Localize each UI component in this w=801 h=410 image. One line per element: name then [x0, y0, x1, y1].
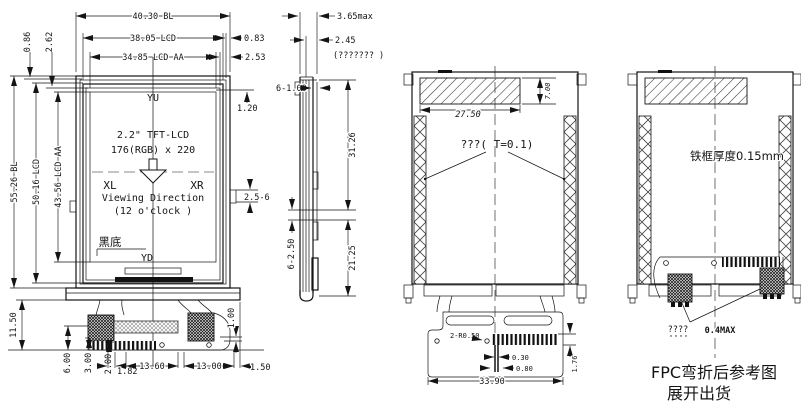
fpc-stiffener-left	[88, 315, 114, 341]
contact-comb	[722, 257, 780, 267]
dim-pin-width: 0.30	[512, 354, 529, 362]
frame-tick	[438, 70, 452, 73]
dim-fpc-1150: 11.50	[9, 312, 19, 338]
side-tape-left	[414, 116, 426, 284]
side-tape-right	[779, 116, 791, 284]
back-view-folded: 铁框厚度0.15mm ???? 0.4MAX FPC弯折后参考图 展开出货	[628, 66, 801, 403]
dim-thickness-max: 3.65max	[337, 12, 373, 22]
dim-inset-120: 1.20	[237, 104, 257, 114]
viewing-direction-arrow	[140, 159, 166, 183]
fpc-hole	[664, 261, 669, 266]
dim-fpc-150: 1.50	[250, 363, 270, 373]
dim-height-aa: 43.56 LCD AA	[54, 146, 64, 207]
side-tape-left	[639, 116, 651, 284]
lcd-outline-drawing: 40.30 BL 38.05 LCD 34.85 LCD AA 0.83 2.5…	[0, 0, 801, 410]
dim-pin-pitch: 0.80	[516, 365, 533, 373]
dim-tape-height: 7.00	[544, 83, 552, 100]
corner-xl: XL	[103, 179, 117, 192]
fpc-stiffener-right	[188, 313, 214, 341]
dim-fpc-200: 2.00	[104, 354, 114, 374]
adhesive-tape	[645, 78, 747, 104]
dim-edge-253: 2.53	[245, 53, 265, 63]
corner-xr: XR	[190, 179, 204, 192]
dim-pin-range: 2.5-6	[244, 193, 270, 203]
dim-fold-max: 0.4MAX	[705, 326, 736, 336]
side-clip	[230, 190, 236, 203]
fpc-hole	[712, 261, 717, 266]
side-notch	[70, 201, 76, 212]
black-bar	[115, 277, 193, 282]
dim-edge-086: 0.86	[23, 32, 33, 52]
dim-fpc-182: 1.82	[117, 367, 137, 377]
viewing-line2: (12 o'clock )	[114, 206, 192, 217]
dim-3126: 31.26	[348, 132, 358, 158]
fpc-stiffener-left	[668, 274, 692, 302]
dim-tape-width: 27.50	[455, 110, 481, 120]
dim-tab-6100: 6-1.00	[276, 84, 307, 94]
fpc-band	[114, 321, 178, 333]
note-black-bg: 黑底	[99, 235, 122, 249]
front-view: 40.30 BL 38.05 LCD 34.85 LCD AA 0.83 2.5…	[8, 12, 270, 377]
side-tape-right	[564, 116, 576, 284]
dim-6250: 6-2.50	[287, 239, 297, 270]
dim-fpc-600: 6.00	[63, 353, 73, 373]
dim-fpc-1300: 13.00	[196, 362, 222, 372]
contact-comb	[492, 334, 558, 345]
dim-edge-083: 0.83	[244, 34, 264, 44]
corner-yu: YU	[147, 93, 159, 104]
viewing-line1: Viewing Direction	[102, 193, 204, 204]
dim-comb-height: 1.76	[571, 356, 579, 373]
dim-height-bl: 55.26 BL	[10, 162, 20, 203]
side-note: (??????? )	[333, 51, 384, 61]
note-tape: ???( T=0.1)	[461, 138, 534, 151]
caption-line1: FPC弯折后参考图	[651, 363, 777, 382]
frame-tick	[658, 70, 672, 73]
title-line1: 2.2" TFT-LCD	[117, 130, 189, 141]
dim-edge-262: 2.62	[45, 32, 55, 52]
fpc-hole	[435, 339, 439, 343]
dim-fpc-1360: 13.60	[139, 362, 165, 372]
back-view-unfolded: 7.00 27.50 ???( T=0.1) 2-R0.50 0.30 0.80…	[404, 66, 586, 387]
note-frame-thickness: 铁框厚度0.15mm	[690, 149, 784, 163]
fpc-hole	[160, 343, 165, 348]
fpc-contact-comb	[90, 341, 156, 350]
fpc-hole	[485, 339, 489, 343]
side-view: 3.65max 2.45 (??????? ) 6-1.00 31.26 21.…	[276, 12, 384, 301]
adhesive-tape	[420, 78, 520, 104]
dim-width-bl: 40.30 BL	[133, 12, 174, 22]
dim-height-lcd: 50.16 LCD	[32, 159, 42, 205]
title-line2: 176(RGB) x 220	[111, 145, 195, 156]
dim-2125: 21.25	[348, 245, 358, 271]
dim-fpc-300: 3.00	[84, 353, 94, 373]
note-unreadable: ????	[668, 325, 688, 335]
dim-fpc-100: 1.00	[227, 308, 237, 328]
caption-line2: 展开出货	[667, 384, 731, 403]
fpc-stiffener-right	[760, 268, 784, 294]
corner-yd: YD	[141, 253, 153, 264]
dim-thickness-245: 2.45	[335, 36, 355, 46]
fpc-hole	[207, 343, 212, 348]
dim-fpc-width: 33.90	[479, 377, 505, 387]
dim-width-lcd: 38.05 LCD	[130, 34, 176, 44]
